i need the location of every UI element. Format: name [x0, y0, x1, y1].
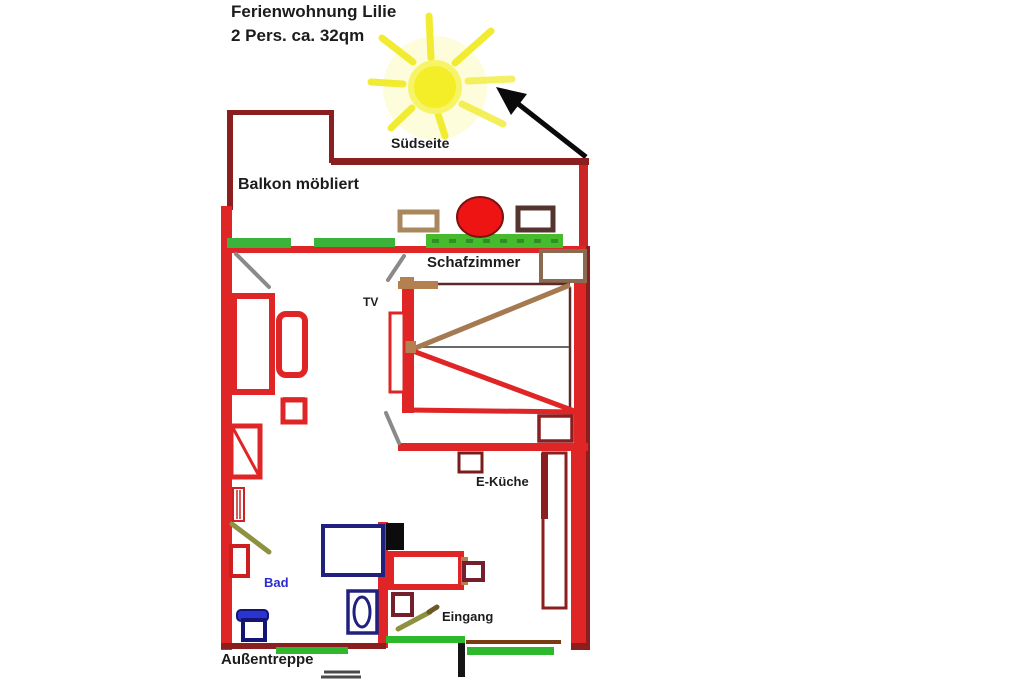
entrance-mat-left	[386, 636, 465, 643]
stool	[283, 400, 305, 422]
label-south-side: Südseite	[391, 136, 449, 151]
tv-board	[390, 313, 404, 392]
threshold-black-post	[458, 643, 465, 677]
wall-right-lower	[571, 450, 586, 650]
floor-plan: Ferienwohnung Lilie 2 Pers. ca. 32qm Süd…	[0, 0, 1024, 683]
wall-balcony-top	[331, 158, 589, 165]
floor-plan-drawing	[0, 0, 1024, 683]
kitchen-counter-edge	[541, 453, 548, 519]
label-balcony: Balkon möbliert	[238, 176, 359, 194]
label-kitchen: E-Küche	[476, 475, 529, 489]
bed-red-diagonal	[413, 351, 577, 412]
bath-sink	[231, 546, 248, 576]
direction-arrow-icon	[496, 87, 586, 157]
bedroom-furniture	[398, 251, 585, 441]
plant-strip-left	[227, 238, 291, 248]
wall-balcony-right	[579, 165, 588, 248]
balcony-table-right	[518, 208, 553, 230]
wall-step	[329, 110, 334, 163]
wall-top-left	[227, 110, 333, 115]
door-entrance-tip	[429, 607, 437, 612]
bed-bottom-edge	[408, 410, 578, 412]
bed-headboard	[398, 281, 438, 289]
kitchen-sink-box	[459, 453, 482, 472]
label-entrance: Eingang	[442, 610, 493, 624]
entry-chair-left	[393, 594, 412, 615]
balcony-table-left	[400, 212, 437, 230]
water-heater	[386, 523, 404, 550]
wardrobe-closet	[541, 251, 585, 281]
label-outdoor-stairs: Außentreppe	[221, 652, 314, 669]
balcony-furniture	[400, 197, 553, 237]
nightstand	[539, 416, 572, 441]
label-bath: Bad	[264, 576, 289, 590]
plan-subtitle: 2 Pers. ca. 32qm	[231, 27, 364, 46]
plant-strip-mid	[314, 238, 395, 247]
sun-core	[411, 63, 459, 111]
toilet-bowl	[243, 620, 265, 640]
coffee-table	[279, 314, 305, 375]
threshold-brown-line	[466, 640, 561, 644]
grass-strip	[426, 234, 563, 248]
label-bedroom: Schafzimmer	[427, 255, 520, 272]
entry-chair-right	[464, 563, 483, 580]
shower-tray	[323, 526, 383, 575]
door-living-kitchen	[386, 413, 399, 443]
balcony-round-table	[457, 197, 503, 237]
washing-machine-door	[354, 597, 370, 627]
wall-left-upper	[227, 110, 233, 210]
sofa	[234, 296, 272, 392]
wall-right-bottom-cap	[571, 643, 590, 650]
radiator	[233, 488, 244, 521]
bed-brown-diagonal	[413, 285, 570, 349]
label-tv: TV	[363, 296, 378, 309]
entry-table	[391, 554, 461, 587]
entrance-mat-right	[467, 647, 554, 655]
living-furniture	[231, 296, 404, 521]
wall-kitchen-top	[398, 443, 588, 451]
sun-icon	[371, 16, 512, 140]
door-balcony-living	[236, 254, 269, 287]
door-balcony-bedroom	[388, 256, 404, 280]
plan-title: Ferienwohnung Lilie	[231, 3, 396, 22]
stairs-icon	[321, 672, 361, 677]
